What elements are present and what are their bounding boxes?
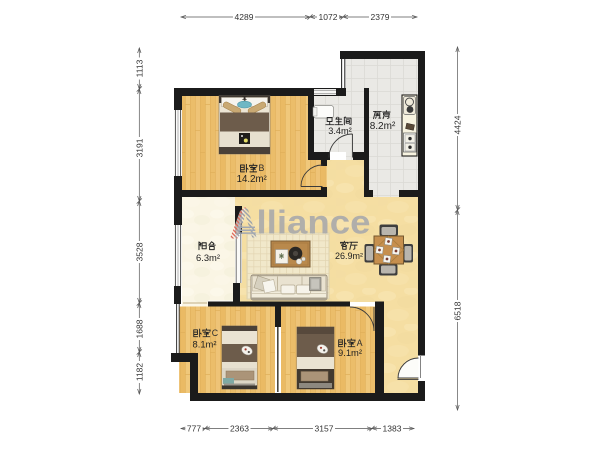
svg-text:1688: 1688 [134,319,144,338]
svg-text:3157: 3157 [315,424,334,434]
svg-text:1113: 1113 [134,59,144,77]
svg-text:4289: 4289 [235,12,254,22]
svg-text:8.2m²: 8.2m² [370,121,396,132]
svg-text:3191: 3191 [134,138,144,157]
svg-text:2379: 2379 [371,12,390,22]
svg-text:9.1m²: 9.1m² [338,347,362,358]
svg-text:6518: 6518 [453,301,463,320]
svg-text:B: B [259,163,265,173]
svg-text:lliance: lliance [257,205,371,242]
svg-text:1182: 1182 [134,363,144,382]
svg-text:8.1m²: 8.1m² [193,339,217,350]
svg-text:3528: 3528 [134,242,144,261]
svg-text:3.4m²: 3.4m² [328,126,352,136]
svg-text:1383: 1383 [383,424,402,434]
svg-text:4424: 4424 [453,115,463,134]
svg-text:1072: 1072 [319,12,338,22]
svg-text:777: 777 [187,424,201,434]
svg-text:14.2m²: 14.2m² [237,174,268,185]
svg-text:26.9m²: 26.9m² [335,251,363,261]
svg-text:C: C [212,328,219,338]
svg-text:6.3m²: 6.3m² [196,252,220,263]
svg-text:2363: 2363 [230,424,249,434]
